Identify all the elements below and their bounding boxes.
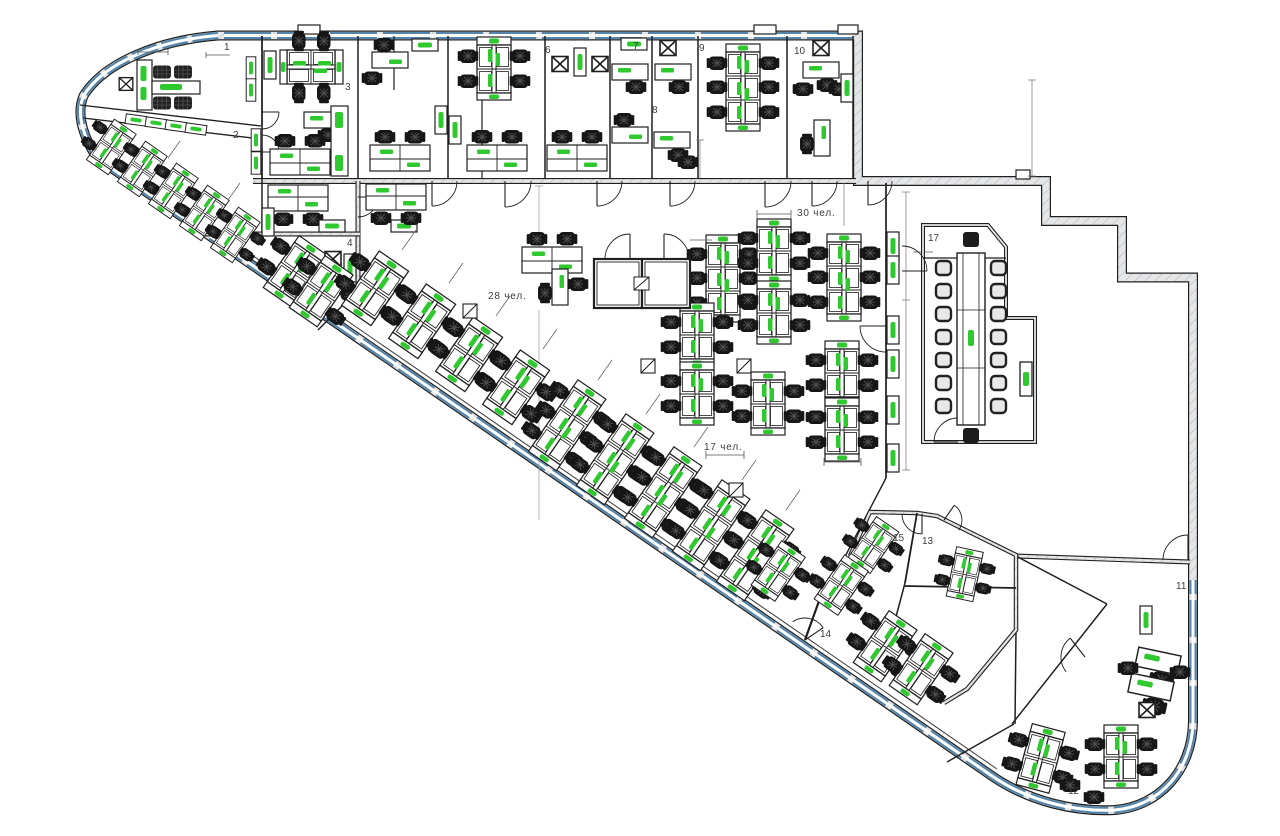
- svg-text:30 чел.: 30 чел.: [797, 208, 836, 219]
- svg-text:6: 6: [545, 45, 551, 56]
- svg-text:17 чел.: 17 чел.: [704, 442, 743, 453]
- svg-text:4: 4: [347, 238, 353, 249]
- svg-text:9: 9: [699, 43, 705, 54]
- svg-text:2: 2: [233, 130, 239, 141]
- svg-text:3: 3: [345, 82, 351, 93]
- svg-text:11: 11: [1176, 581, 1187, 592]
- svg-text:12: 12: [1068, 786, 1080, 797]
- svg-text:28 чел.: 28 чел.: [488, 291, 527, 302]
- svg-text:13: 13: [922, 536, 934, 547]
- svg-text:17: 17: [928, 233, 940, 244]
- svg-text:10: 10: [794, 46, 806, 57]
- svg-text:7: 7: [633, 41, 639, 52]
- svg-text:14: 14: [820, 629, 832, 640]
- svg-text:8: 8: [652, 105, 658, 116]
- svg-text:1: 1: [224, 42, 230, 53]
- svg-text:15: 15: [893, 533, 905, 544]
